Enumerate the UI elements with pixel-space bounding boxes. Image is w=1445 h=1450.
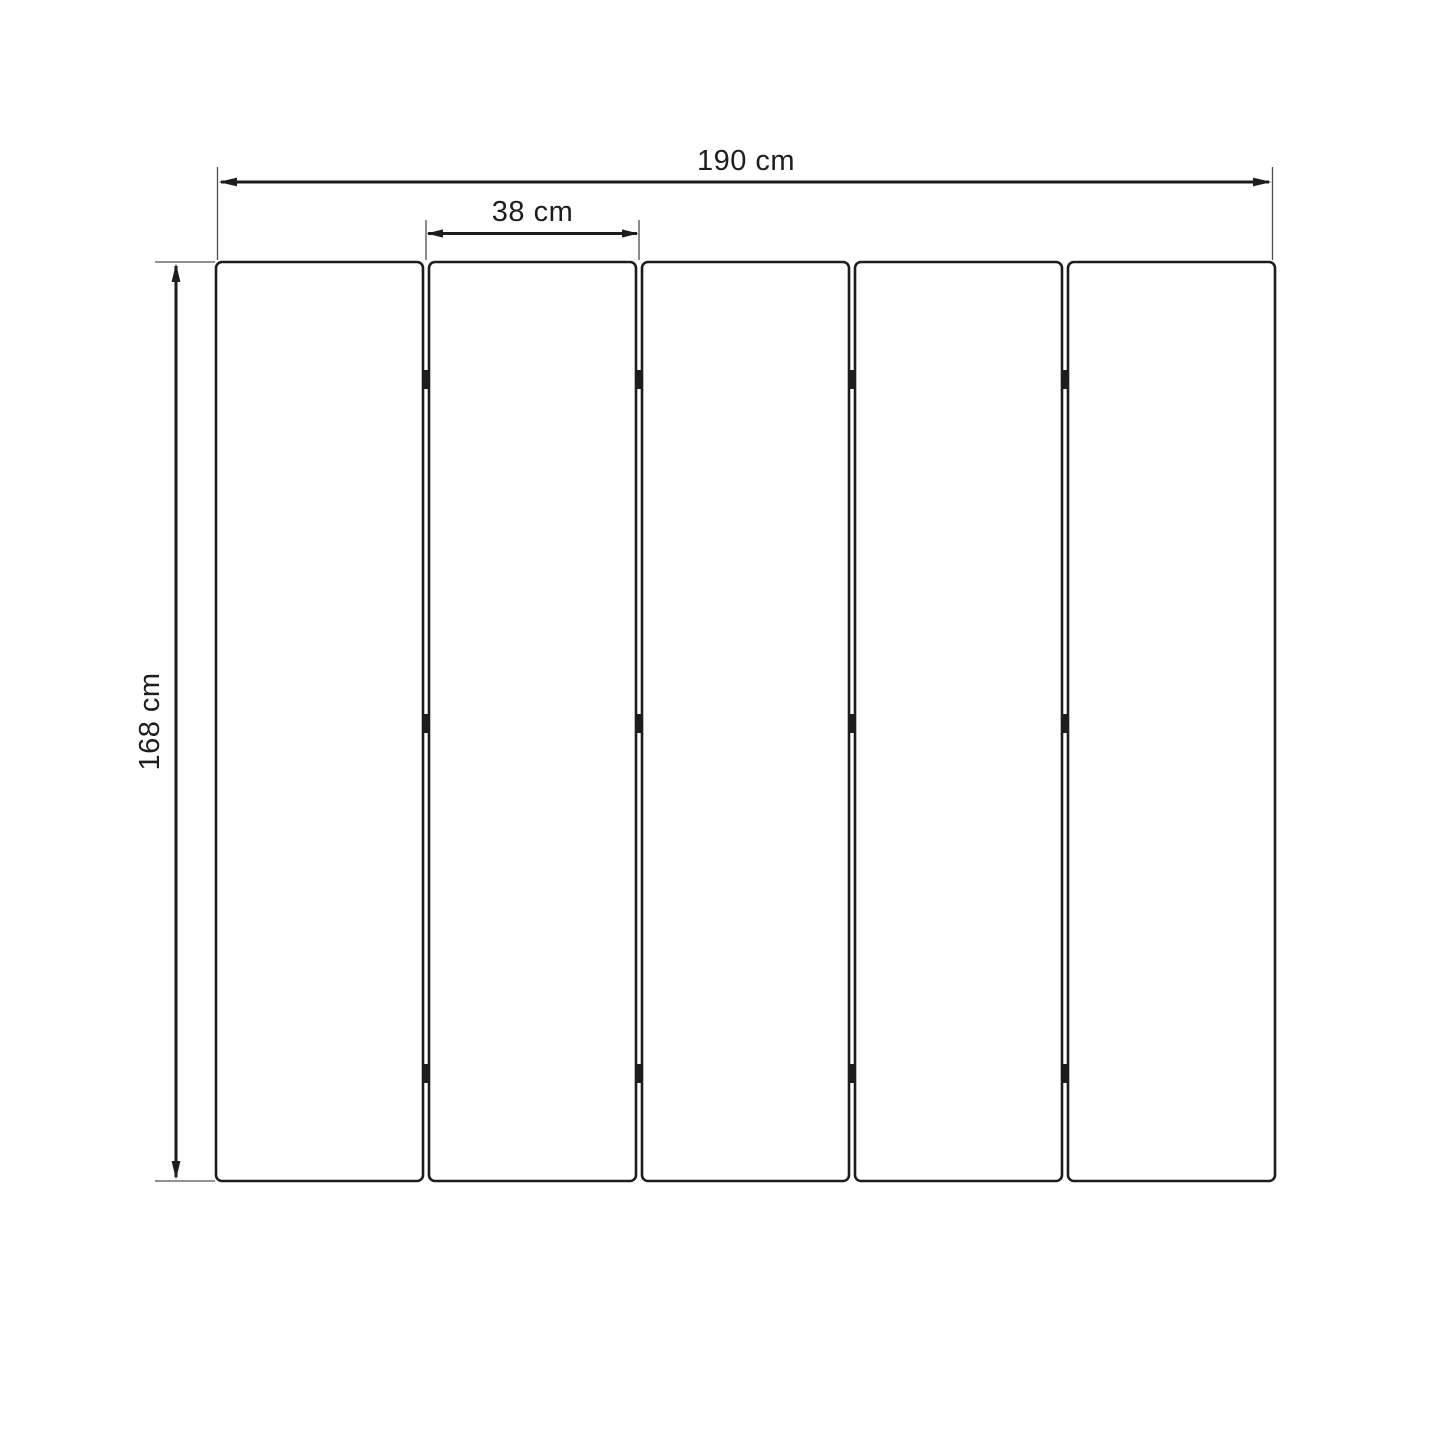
arrow-right-icon xyxy=(1253,178,1272,187)
dimension-height: 168 cm xyxy=(134,264,180,1180)
screen-panel-3 xyxy=(642,262,849,1181)
screen-panel-4 xyxy=(855,262,1062,1181)
folding-screen-drawing: 190 cm 38 cm 168 cm xyxy=(0,0,1445,1445)
dimension-total-width: 190 cm xyxy=(219,145,1272,186)
screen-panel-2 xyxy=(429,262,636,1181)
hinge-mark xyxy=(848,370,856,389)
hinge-mark xyxy=(1061,1064,1069,1083)
hinge-mark xyxy=(1061,714,1069,733)
dimension-diagram: 190 cm 38 cm 168 cm xyxy=(0,0,1445,1445)
arrow-right-icon xyxy=(622,229,639,237)
dimension-panel-width: 38 cm xyxy=(427,196,639,238)
arrow-left-icon xyxy=(219,178,238,187)
arrow-left-icon xyxy=(427,229,444,237)
screen-panel-5 xyxy=(1068,262,1275,1181)
hinge-mark xyxy=(848,1064,856,1083)
arrow-down-icon xyxy=(172,1161,181,1180)
panel-width-label: 38 cm xyxy=(492,196,573,228)
total-width-label: 190 cm xyxy=(697,145,795,177)
hinge-mark xyxy=(422,1064,430,1083)
panel-group xyxy=(216,262,1275,1181)
screen-panel-1 xyxy=(216,262,423,1181)
hinge-mark xyxy=(422,370,430,389)
hinge-mark xyxy=(635,1064,643,1083)
hinge-mark xyxy=(422,714,430,733)
hinge-mark xyxy=(635,714,643,733)
hinge-mark xyxy=(848,714,856,733)
hinge-mark xyxy=(635,370,643,389)
hinge-mark xyxy=(1061,370,1069,389)
arrow-up-icon xyxy=(172,264,181,283)
height-label: 168 cm xyxy=(134,672,166,770)
